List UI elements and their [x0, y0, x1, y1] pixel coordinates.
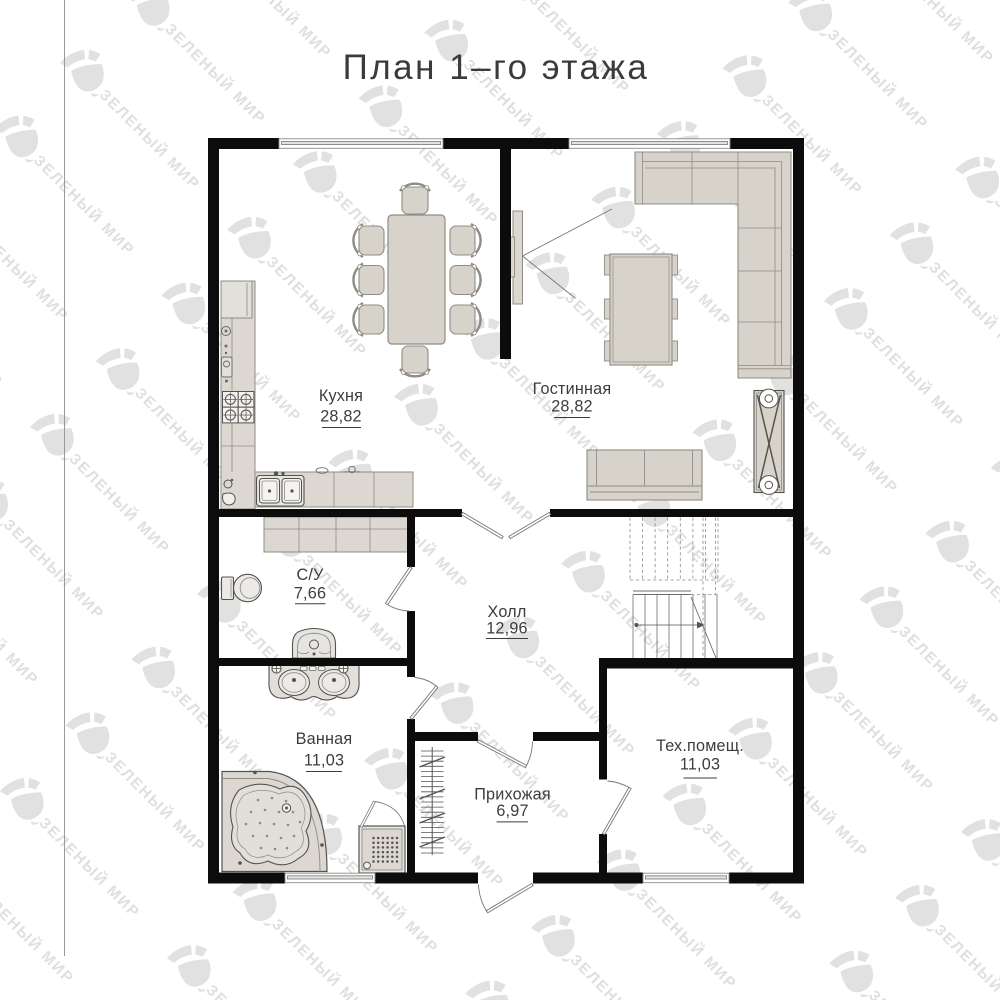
- svg-text:С/У: С/У: [296, 566, 324, 584]
- svg-text:28,82: 28,82: [551, 398, 593, 416]
- svg-text:Гостинная: Гостинная: [533, 380, 612, 398]
- svg-text:7,66: 7,66: [294, 585, 326, 603]
- svg-text:Холл: Холл: [488, 603, 527, 621]
- svg-text:6,97: 6,97: [496, 802, 528, 820]
- svg-text:12,96: 12,96: [486, 620, 528, 638]
- svg-text:11,03: 11,03: [680, 756, 720, 774]
- svg-text:План 1–го этажа: План 1–го этажа: [343, 48, 650, 87]
- svg-text:Ванная: Ванная: [296, 730, 353, 748]
- svg-text:Кухня: Кухня: [319, 387, 363, 405]
- svg-text:Прихожая: Прихожая: [474, 786, 551, 804]
- svg-text:Тех.помещ.: Тех.помещ.: [656, 737, 744, 755]
- svg-text:28,82: 28,82: [320, 408, 362, 426]
- svg-text:11,03: 11,03: [304, 752, 344, 770]
